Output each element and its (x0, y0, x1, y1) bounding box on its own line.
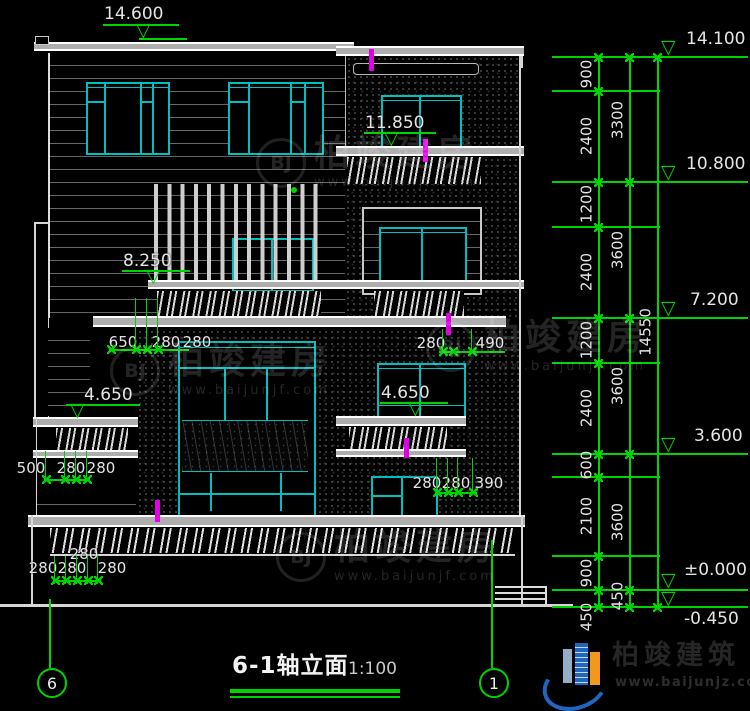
dim-text: 3300 (611, 101, 626, 139)
tower-roof-cap (521, 56, 523, 68)
door-transom (180, 367, 314, 369)
dim-extension (447, 458, 448, 492)
dim-text: 450 (580, 603, 595, 632)
dim-tick (143, 345, 152, 354)
axis-bubble-6: 6 (37, 668, 67, 698)
dim-text: 600 (580, 451, 595, 480)
dim-text: 3600 (611, 231, 626, 269)
downpipe-mark (423, 139, 428, 162)
pergola-bars (154, 184, 321, 283)
dim-text: 3600 (611, 367, 626, 405)
ground-line (0, 604, 573, 607)
elevation-drawing-canvas: BJ 柏竣建房 www.baijunjf.com BJ 柏竣建房 www.bai… (0, 0, 750, 711)
extension-line (552, 226, 660, 228)
window-transom (290, 101, 304, 103)
dim-tick (61, 475, 70, 484)
floor-slab-2f (93, 316, 506, 327)
entry-steps (495, 586, 547, 604)
brand-name: 柏竣建筑 (612, 642, 740, 669)
level-underline (364, 132, 436, 134)
level-triangle-icon: ▽ (146, 267, 161, 286)
brand-logo-tower-icon (590, 652, 600, 685)
wing-slab (33, 417, 138, 427)
window-mullion (248, 84, 250, 153)
drawing-scale: 1:100 (348, 661, 397, 678)
dim-tick (454, 488, 463, 497)
window-3f-left-2 (228, 82, 324, 155)
downpipe-mark (155, 500, 160, 522)
level-label-floor3: 10.800 (686, 156, 745, 173)
dim-text: 3600 (611, 503, 626, 541)
green-node-dot (291, 187, 297, 193)
dim-tick (625, 450, 634, 459)
left-roof-slab (34, 42, 354, 51)
level-label-wing-left: 4.650 (84, 387, 133, 404)
window-mullion (104, 84, 106, 153)
dim-tick (439, 347, 448, 356)
level-triangle-icon: ▽ (384, 129, 399, 148)
level-triangle-icon: ▽ (661, 435, 676, 454)
handrail-band-2f (148, 280, 524, 289)
dim-tick (83, 475, 92, 484)
window-transom (373, 495, 401, 497)
extension-line (552, 90, 660, 92)
dim-tick (625, 314, 634, 323)
level-label-tower-parapet: 14.100 (686, 31, 745, 48)
dim-text: 2400 (580, 253, 595, 291)
main-door (178, 341, 316, 517)
dim-extension (436, 458, 437, 492)
left-roof-cap (35, 36, 49, 45)
window-transom (140, 101, 152, 103)
window-mullion (140, 84, 142, 153)
dim-extension (457, 458, 458, 492)
window-inner-frame-line (381, 232, 465, 233)
window-inner-frame-line (379, 368, 464, 369)
ground-railing (50, 528, 515, 553)
level-label-site: -0.450 (684, 611, 739, 628)
left-pilaster-line (34, 222, 36, 418)
dim-tick (469, 488, 478, 497)
dim-tick (625, 53, 634, 62)
dimension-line-3 (657, 57, 659, 607)
extension-line (552, 453, 660, 455)
extension-line (552, 589, 660, 591)
window-mullion (152, 84, 154, 153)
level-label-roof-left: 14.600 (104, 6, 163, 23)
downpipe-mark (446, 313, 451, 335)
level-triangle-icon: ▽ (661, 299, 676, 318)
extension-line (552, 555, 660, 557)
dimension-line-1 (598, 57, 600, 607)
dim-tick (449, 347, 458, 356)
dim-text: 900 (580, 60, 595, 89)
dim-tick (42, 475, 51, 484)
title-underline-thin (230, 696, 400, 698)
dim-text: 280 (57, 461, 86, 476)
dim-tick (154, 345, 163, 354)
extension-line (552, 56, 660, 58)
dim-tick (625, 178, 634, 187)
level-label-ground: ±0.000 (684, 562, 747, 579)
title-underline-thick (230, 689, 400, 693)
window-inner-frame-line (230, 87, 322, 88)
dim-text: 2100 (580, 497, 595, 535)
right-balcony-band (336, 449, 466, 457)
dim-tick (594, 223, 603, 232)
window-transom (88, 101, 104, 103)
level-triangle-icon: ▽ (661, 163, 676, 182)
dim-extension (472, 458, 473, 492)
level-triangle-icon: ▽ (408, 399, 423, 418)
door-stone-panel (182, 420, 308, 472)
dim-tick (94, 576, 103, 585)
wing-wall-siding (36, 492, 136, 514)
dim-tick (433, 488, 442, 497)
dim-extension (157, 298, 158, 350)
wing-railing (56, 428, 128, 451)
window-mullion (304, 84, 306, 153)
extension-line (552, 476, 660, 478)
level-triangle-icon: ▽ (70, 401, 85, 420)
building-right-edge (519, 56, 521, 515)
tower-roof-slab (336, 46, 524, 56)
downpipe-mark (369, 49, 374, 71)
window-tower-mid (379, 227, 467, 288)
level-triangle-icon: ▽ (661, 589, 676, 608)
window-mullion (421, 229, 423, 286)
dim-text: 280 (98, 561, 127, 576)
dim-tick (594, 586, 603, 595)
door-mullion (210, 473, 212, 511)
axis-bubble-1-label: 1 (489, 674, 499, 693)
brand-logo-tower-icon (563, 649, 572, 683)
dim-text: 1200 (580, 185, 595, 223)
left-ledge-line (34, 222, 48, 224)
dim-tick (132, 345, 141, 354)
dim-text: 490 (476, 336, 505, 351)
window-mullion (290, 84, 292, 153)
window-inner-frame-line (383, 100, 460, 101)
window-3f-left-1 (86, 82, 170, 155)
door-rail (180, 493, 314, 495)
dim-text: 280 (87, 461, 116, 476)
level-label-floor1: 3.600 (694, 428, 743, 445)
dim-tick (72, 475, 81, 484)
window-inner-frame-line (88, 87, 168, 88)
window-transom (230, 101, 248, 103)
extension-line (552, 606, 660, 608)
brand-url: www.baijunjz.com (615, 676, 750, 689)
right-balcony-slab (336, 416, 466, 426)
dim-tick (51, 576, 60, 585)
right-balcony-railing (349, 427, 447, 449)
door-mullion (266, 367, 268, 421)
axis-bubble-1: 1 (479, 668, 509, 698)
dim-text: 390 (475, 476, 504, 491)
dim-text: 280 (58, 561, 87, 576)
railing-2f-left (157, 291, 321, 318)
dim-text-total: 14550 (639, 308, 654, 356)
dim-tick (62, 576, 71, 585)
dim-text: 450 (611, 582, 626, 611)
dim-tick (444, 488, 453, 497)
extension-line (552, 181, 660, 183)
brand-logo-tower-icon (575, 643, 588, 685)
dim-extension (146, 298, 147, 350)
dimension-line-2 (629, 57, 631, 607)
dim-tick (594, 87, 603, 96)
dim-text: 2400 (580, 389, 595, 427)
dim-tick (107, 345, 116, 354)
level-line (139, 38, 187, 40)
level-label-floor2: 7.200 (690, 292, 739, 309)
dim-tick (594, 359, 603, 368)
axis-bubble-6-label: 6 (47, 674, 57, 693)
dim-text: 500 (17, 461, 46, 476)
tower-balcony-slab (336, 146, 524, 156)
dim-text: 900 (580, 559, 595, 588)
dim-extension (135, 298, 136, 350)
tower-balcony-railing (347, 157, 481, 184)
axis-line-left (49, 599, 51, 668)
dim-tick (468, 347, 477, 356)
axis-line-right (491, 540, 493, 668)
level-triangle-icon: ▽ (661, 38, 676, 57)
ground-slab (28, 515, 525, 527)
dim-text: 1200 (580, 321, 595, 359)
extension-line (552, 362, 660, 364)
drawing-title: 6-1轴立面 (232, 655, 349, 678)
door-mullion (280, 473, 282, 511)
downpipe-mark (404, 438, 409, 458)
dim-tick (84, 576, 93, 585)
dim-tick (73, 576, 82, 585)
dim-text: 2400 (580, 117, 595, 155)
dim-text: 280 (183, 335, 212, 350)
window-mullion (401, 478, 403, 515)
door-mullion (224, 367, 226, 421)
